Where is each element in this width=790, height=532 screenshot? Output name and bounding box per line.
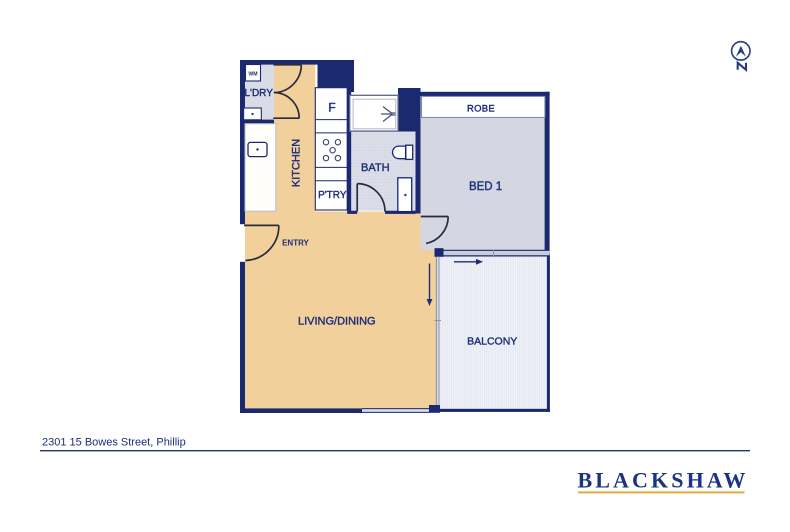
svg-text:L'DRY: L'DRY [244, 88, 273, 99]
svg-text:F: F [328, 100, 335, 114]
svg-text:P'TRY: P'TRY [318, 190, 347, 201]
svg-text:BATH: BATH [361, 162, 390, 174]
svg-text:KITCHEN: KITCHEN [291, 139, 303, 187]
svg-text:LIVING/DINING: LIVING/DINING [298, 316, 376, 328]
svg-text:BED 1: BED 1 [469, 181, 502, 193]
svg-text:ROBE: ROBE [467, 103, 495, 114]
svg-text:BALCONY: BALCONY [467, 335, 517, 347]
svg-text:WM: WM [248, 72, 257, 78]
svg-text:ENTRY: ENTRY [282, 239, 309, 248]
svg-text:BLACKSHAW: BLACKSHAW [578, 468, 749, 493]
svg-text:2301 15 Bowes Street, Phillip: 2301 15 Bowes Street, Phillip [42, 437, 186, 449]
